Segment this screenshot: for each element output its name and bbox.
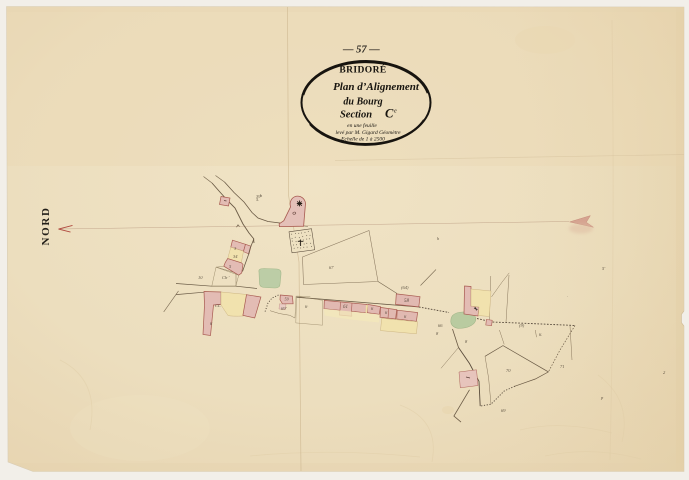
svg-text:70: 70 <box>506 368 511 373</box>
svg-text:Plan d’Alignement: Plan d’Alignement <box>333 81 420 93</box>
svg-text:.: . <box>567 293 568 298</box>
svg-text:C: C <box>385 107 394 121</box>
svg-text:Echelle de 1 à 2500: Echelle de 1 à 2500 <box>340 137 385 143</box>
svg-text:CL: CL <box>215 303 221 308</box>
svg-text:(64): (64) <box>401 285 409 290</box>
svg-text:e: e <box>394 109 397 115</box>
svg-text:61: 61 <box>343 305 348 310</box>
svg-text:levé par M. Gigard Géomètre: levé par M. Gigard Géomètre <box>335 130 401 136</box>
svg-text:BRIDORÉ: BRIDORÉ <box>339 64 386 76</box>
svg-text:Ch·ʹ: Ch·ʹ <box>222 275 230 280</box>
svg-text:NORD: NORD <box>40 206 52 245</box>
svg-text:34: 34 <box>233 254 238 259</box>
svg-text:6·: 6· <box>305 304 308 309</box>
svg-text:66: 66 <box>438 323 443 328</box>
svg-text:69: 69 <box>501 408 506 413</box>
svg-text:6.: 6. <box>539 332 542 337</box>
svg-text:du Bourg: du Bourg <box>343 97 382 108</box>
svg-text:en une feuille: en une feuille <box>347 122 377 129</box>
svg-text:67: 67 <box>329 265 334 270</box>
svg-text:Section: Section <box>340 110 372 121</box>
svg-text:10: 10 <box>198 275 203 280</box>
svg-text:71: 71 <box>560 364 565 369</box>
svg-text:58: 58 <box>404 299 410 304</box>
svg-text:(9): (9) <box>519 323 525 328</box>
svg-text:39: 39 <box>256 194 261 199</box>
svg-text:— 57 —: — 57 — <box>342 45 380 56</box>
